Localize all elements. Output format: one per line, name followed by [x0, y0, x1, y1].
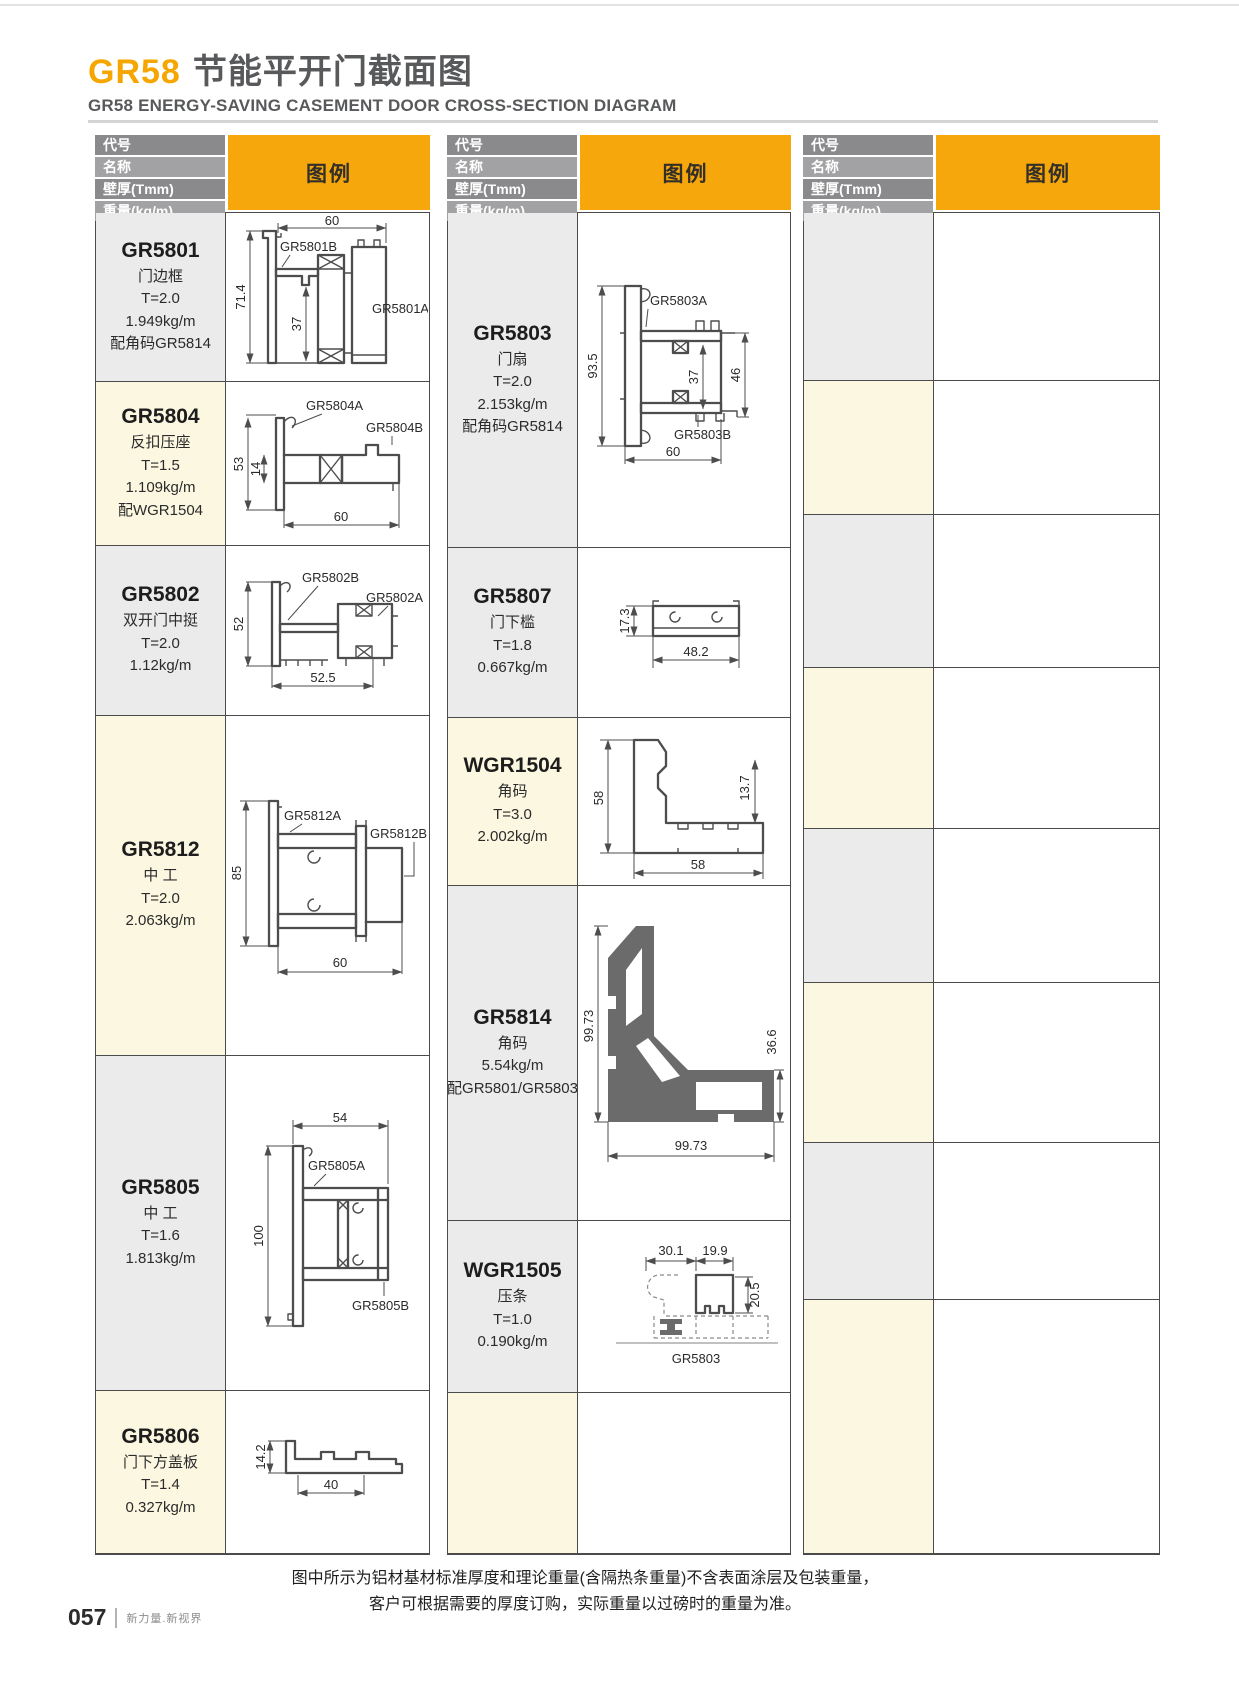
dim-right: 20.5	[747, 1282, 762, 1307]
context-profile-label: GR5803	[672, 1351, 720, 1366]
row-gr5801: GR5801 门边框 T=2.0 1.949kg/m 配角码GR5814	[96, 213, 429, 382]
product-thickness: T=2.0	[493, 371, 532, 394]
dim-height: 99.73	[581, 1010, 596, 1043]
product-thickness: T=1.8	[493, 635, 532, 658]
product-name: 中 工	[143, 865, 177, 888]
product-info-cell: GR5806 门下方盖板 T=1.4 0.327kg/m	[96, 1391, 226, 1553]
row-empty	[804, 1300, 1159, 1553]
product-info-cell: GR5814 角码 5.54kg/m 配GR5801/GR5803	[448, 886, 578, 1220]
row-gr5803: GR5803 门扇 T=2.0 2.153kg/m 配角码GR5814	[448, 213, 790, 548]
gr5802-cross-section-svg: 52 52.5 GR5802B GR5802A	[226, 546, 428, 715]
empty-diagram-cell	[934, 983, 1159, 1142]
dim-right: 46	[728, 368, 743, 382]
empty-info-cell	[804, 829, 934, 982]
product-thickness: T=1.6	[141, 1225, 180, 1248]
legend-header: 图例	[228, 135, 430, 210]
part-label-a: GR5801A	[372, 301, 428, 316]
row-empty	[804, 668, 1159, 829]
dim-height: 17.3	[617, 608, 632, 633]
empty-info-cell	[804, 668, 934, 828]
page-number: 057	[68, 1604, 106, 1631]
empty-info-cell	[804, 1300, 934, 1553]
dim-top1: 30.1	[658, 1243, 683, 1258]
product-info-cell: GR5804 反扣压座 T=1.5 1.109kg/m 配WGR1504	[96, 382, 226, 545]
product-weight: 0.190kg/m	[477, 1331, 547, 1354]
product-info-cell: WGR1505 压条 T=1.0 0.190kg/m	[448, 1221, 578, 1392]
dim-top: 60	[325, 213, 339, 228]
header-row-code: 代号	[95, 135, 225, 155]
header-row-thickness: 壁厚(Tmm)	[95, 179, 225, 199]
product-name: 门边框	[138, 266, 183, 289]
profile-outline	[653, 606, 739, 636]
product-note: 配角码GR5814	[462, 416, 563, 439]
product-code: GR5803	[473, 322, 551, 346]
profile-outline	[276, 418, 284, 510]
header-row-code: 代号	[803, 135, 933, 155]
footer-note-line1: 图中所示为铝材基材标准厚度和理论重量(含隔热条重量)不含表面涂层及包装重量，	[95, 1566, 1075, 1592]
profile-outline	[269, 801, 278, 946]
gr5803-cross-section-svg: 93.5 37 46 60 GR5803A GR5803B	[578, 213, 789, 547]
profile-outline	[625, 286, 641, 446]
dim-bottom: 60	[334, 509, 348, 524]
dim-bottom: 58	[691, 857, 705, 872]
dim-right: 13.7	[737, 775, 752, 800]
dim-bottom: 40	[324, 1477, 338, 1492]
diagram-cell: 54 100 GR5805A GR5805B	[226, 1056, 429, 1390]
product-name: 压条	[497, 1286, 527, 1309]
part-label-a: GR5812A	[284, 808, 341, 823]
part-label-b: GR5801B	[280, 239, 337, 254]
profile-outline	[263, 231, 276, 363]
gr5806-cross-section-svg: 14.2 40	[226, 1391, 428, 1552]
header-row-thickness: 壁厚(Tmm)	[803, 179, 933, 199]
header-row-name: 名称	[803, 157, 933, 177]
product-thickness: T=2.0	[141, 633, 180, 656]
product-code: GR5814	[473, 1006, 551, 1030]
product-weight: 2.153kg/m	[477, 394, 547, 417]
product-name: 双开门中挺	[123, 610, 198, 633]
dim-height: 93.5	[585, 353, 600, 378]
header-label-stack: 代号 名称 壁厚(Tmm) 重量(kg/m)	[803, 135, 933, 210]
product-note: 配GR5801/GR5803	[447, 1078, 578, 1101]
gr5801-cross-section-svg: 60 71.4 37 GR5801B GR5801A	[226, 213, 428, 381]
row-empty	[804, 1143, 1159, 1300]
row-gr5806: GR5806 门下方盖板 T=1.4 0.327kg/m 14.2 40	[96, 1391, 429, 1553]
empty-info-cell	[804, 983, 934, 1142]
diagram-cell: 99.73 36.6 99.73	[578, 886, 790, 1220]
product-note: 配WGR1504	[118, 500, 203, 523]
dim-bottom: 48.2	[683, 644, 708, 659]
row-empty	[804, 381, 1159, 515]
row-empty	[804, 983, 1159, 1143]
gr5807-cross-section-svg: 17.3 48.2	[578, 548, 789, 717]
product-info-cell: GR5812 中 工 T=2.0 2.063kg/m	[96, 716, 226, 1055]
footer-divider	[115, 1608, 117, 1628]
product-weight: 1.949kg/m	[125, 311, 195, 334]
part-label-a: GR5802A	[366, 590, 423, 605]
row-gr5804: GR5804 反扣压座 T=1.5 1.109kg/m 配WGR1504	[96, 382, 429, 546]
product-code: GR5801	[121, 239, 199, 263]
part-label-a: GR5804A	[306, 398, 363, 413]
wgr1505-cross-section-svg: 30.1 19.9 20.5 GR5803	[578, 1221, 789, 1392]
table-header: 代号 名称 壁厚(Tmm) 重量(kg/m) 图例	[803, 135, 1160, 210]
profile-outline	[293, 1146, 303, 1326]
product-name: 中 工	[143, 1203, 177, 1226]
dim-height: 71.4	[233, 284, 248, 309]
table-body: GR5801 门边框 T=2.0 1.949kg/m 配角码GR5814	[95, 212, 430, 1555]
header-row-name: 名称	[95, 157, 225, 177]
product-weight: 2.063kg/m	[125, 910, 195, 933]
product-info-cell: GR5805 中 工 T=1.6 1.813kg/m	[96, 1056, 226, 1390]
profile-outline	[696, 1275, 733, 1313]
row-gr5814: GR5814 角码 5.54kg/m 配GR5801/GR5803 99.73 …	[448, 886, 790, 1221]
page-title-en: GR58 ENERGY-SAVING CASEMENT DOOR CROSS-S…	[88, 96, 677, 116]
dim-bottom: 60	[333, 955, 347, 970]
dim-top: 54	[333, 1110, 347, 1125]
gr5812-cross-section-svg: 85 60 GR5812A GR5812B	[226, 716, 428, 1055]
product-code: WGR1505	[463, 1259, 561, 1283]
table-body	[803, 212, 1160, 1555]
part-label-a: GR5803A	[650, 293, 707, 308]
product-thickness: T=2.0	[141, 288, 180, 311]
product-code: GR5807	[473, 585, 551, 609]
catalog-page: GR58节能平开门截面图 GR58 ENERGY-SAVING CASEMENT…	[0, 0, 1239, 1681]
page-title-zh: 节能平开门截面图	[193, 53, 473, 91]
diagram-cell: 17.3 48.2	[578, 548, 790, 717]
page-title: GR58节能平开门截面图	[88, 44, 677, 93]
product-name: 角码	[497, 781, 527, 804]
part-label-b: GR5802B	[302, 570, 359, 585]
header-label-stack: 代号 名称 壁厚(Tmm) 重量(kg/m)	[447, 135, 577, 210]
empty-info-cell	[448, 1393, 578, 1553]
row-empty	[804, 213, 1159, 381]
table-body: GR5803 门扇 T=2.0 2.153kg/m 配角码GR5814	[447, 212, 791, 1555]
empty-diagram-cell	[934, 829, 1159, 982]
profile-outline	[272, 582, 280, 666]
diagram-cell: 85 60 GR5812A GR5812B	[226, 716, 429, 1055]
product-info-cell: WGR1504 角码 T=3.0 2.002kg/m	[448, 718, 578, 885]
empty-diagram-cell	[934, 515, 1159, 667]
row-gr5805: GR5805 中 工 T=1.6 1.813kg/m 54	[96, 1056, 429, 1391]
dim-inner: 14	[248, 462, 263, 476]
product-name: 门扇	[497, 349, 527, 372]
row-empty	[448, 1393, 790, 1553]
dim-bottom: 52.5	[310, 670, 335, 685]
row-gr5802: GR5802 双开门中挺 T=2.0 1.12kg/m	[96, 546, 429, 716]
table-header: 代号 名称 壁厚(Tmm) 重量(kg/m) 图例	[95, 135, 430, 210]
dim-height: 100	[251, 1225, 266, 1247]
footer-note-line2: 客户可根据需要的厚度订购，实际重量以过磅时的重量为准。	[95, 1592, 1075, 1618]
empty-info-cell	[804, 1143, 934, 1299]
row-empty	[804, 515, 1159, 668]
dim-height: 58	[591, 791, 606, 805]
empty-info-cell	[804, 515, 934, 667]
dim-height: 85	[229, 866, 244, 880]
product-weight: 5.54kg/m	[482, 1055, 544, 1078]
dim-bottom: 99.73	[675, 1138, 708, 1153]
empty-diagram-cell	[934, 213, 1159, 380]
empty-info-cell	[804, 381, 934, 514]
product-weight: 2.002kg/m	[477, 826, 547, 849]
table-column-3: 代号 名称 壁厚(Tmm) 重量(kg/m) 图例	[803, 135, 1160, 1555]
product-note: 配角码GR5814	[110, 333, 211, 356]
row-wgr1504: WGR1504 角码 T=3.0 2.002kg/m 58 13.7	[448, 718, 790, 886]
empty-diagram-cell	[934, 1300, 1159, 1553]
dim-height: 14.2	[253, 1444, 268, 1469]
gr5805-cross-section-svg: 54 100 GR5805A GR5805B	[226, 1056, 428, 1390]
product-weight: 1.813kg/m	[125, 1248, 195, 1271]
product-thickness: T=3.0	[493, 804, 532, 827]
header-row-name: 名称	[447, 157, 577, 177]
legend-header: 图例	[580, 135, 791, 210]
product-name: 角码	[497, 1033, 527, 1056]
title-block: GR58节能平开门截面图 GR58 ENERGY-SAVING CASEMENT…	[88, 44, 677, 116]
gr5804-cross-section-svg: 53 14 60 GR5804A GR5804B	[226, 382, 428, 545]
product-code: GR5812	[121, 838, 199, 862]
diagram-cell: 30.1 19.9 20.5 GR5803	[578, 1221, 790, 1392]
diagram-cell: 58 13.7 58	[578, 718, 790, 885]
row-empty	[804, 829, 1159, 983]
product-info-cell: GR5801 门边框 T=2.0 1.949kg/m 配角码GR5814	[96, 213, 226, 381]
product-weight: 1.109kg/m	[125, 477, 195, 500]
product-code: WGR1504	[463, 754, 561, 778]
diagram-cell: 14.2 40	[226, 1391, 429, 1553]
header-row-thickness: 壁厚(Tmm)	[447, 179, 577, 199]
product-info-cell: GR5803 门扇 T=2.0 2.153kg/m 配角码GR5814	[448, 213, 578, 547]
table-column-1: 代号 名称 壁厚(Tmm) 重量(kg/m) 图例 GR5801 门边框 T=2…	[95, 135, 430, 1555]
product-code: GR5802	[121, 583, 199, 607]
product-info-cell: GR5802 双开门中挺 T=2.0 1.12kg/m	[96, 546, 226, 715]
empty-info-cell	[804, 213, 934, 380]
profile-solid	[608, 926, 774, 1122]
product-code: GR5805	[121, 1176, 199, 1200]
dim-height: 52	[231, 617, 246, 631]
dim-top2: 19.9	[702, 1243, 727, 1258]
header-label-stack: 代号 名称 壁厚(Tmm) 重量(kg/m)	[95, 135, 225, 210]
dim-height: 53	[231, 457, 246, 471]
page-top-rule	[0, 4, 1239, 6]
gr5814-cross-section-svg: 99.73 36.6 99.73	[578, 886, 789, 1220]
part-label-b: GR5804B	[366, 420, 423, 435]
dim-inner: 37	[289, 317, 304, 331]
diagram-cell: 53 14 60 GR5804A GR5804B	[226, 382, 429, 545]
part-label-b: GR5805B	[352, 1298, 409, 1313]
product-name: 反扣压座	[130, 432, 190, 455]
dim-right: 36.6	[764, 1029, 779, 1054]
product-name: 门下槛	[490, 612, 535, 635]
product-thickness: T=1.4	[141, 1474, 180, 1497]
header-row-code: 代号	[447, 135, 577, 155]
empty-diagram-cell	[578, 1393, 790, 1553]
product-weight: 0.667kg/m	[477, 657, 547, 680]
product-thickness: T=1.0	[493, 1309, 532, 1332]
footer-note: 图中所示为铝材基材标准厚度和理论重量(含隔热条重量)不含表面涂层及包装重量， 客…	[95, 1566, 1075, 1618]
product-thickness: T=2.0	[141, 888, 180, 911]
product-code: GR5804	[121, 405, 199, 429]
row-wgr1505: WGR1505 压条 T=1.0 0.190kg/m 30.1 19.9	[448, 1221, 790, 1393]
row-gr5807: GR5807 门下槛 T=1.8 0.667kg/m 17.3	[448, 548, 790, 718]
product-name: 门下方盖板	[123, 1452, 198, 1475]
diagram-cell: 60 71.4 37 GR5801B GR5801A	[226, 213, 429, 381]
part-label-b: GR5803B	[674, 427, 731, 442]
table-column-2: 代号 名称 壁厚(Tmm) 重量(kg/m) 图例 GR5803 门扇 T=2.…	[447, 135, 791, 1555]
product-weight: 0.327kg/m	[125, 1497, 195, 1520]
empty-diagram-cell	[934, 668, 1159, 828]
empty-diagram-cell	[934, 1143, 1159, 1299]
wgr1504-cross-section-svg: 58 13.7 58	[578, 718, 789, 885]
product-code: GR5806	[121, 1425, 199, 1449]
diagram-cell: 52 52.5 GR5802B GR5802A	[226, 546, 429, 715]
dim-bottom: 60	[666, 444, 680, 459]
legend-header: 图例	[936, 135, 1160, 210]
part-label-b: GR5812B	[370, 826, 427, 841]
footer-slogan: 新力量.新视界	[126, 1610, 202, 1626]
row-gr5812: GR5812 中 工 T=2.0 2.063kg/m	[96, 716, 429, 1056]
part-label-a: GR5805A	[308, 1158, 365, 1173]
title-underline	[88, 120, 1158, 123]
empty-diagram-cell	[934, 381, 1159, 514]
product-thickness: T=1.5	[141, 455, 180, 478]
diagram-cell: 93.5 37 46 60 GR5803A GR5803B	[578, 213, 790, 547]
table-header: 代号 名称 壁厚(Tmm) 重量(kg/m) 图例	[447, 135, 791, 210]
page-footer: 057 新力量.新视界	[68, 1604, 202, 1631]
profile-outline	[286, 1441, 402, 1473]
product-info-cell: GR5807 门下槛 T=1.8 0.667kg/m	[448, 548, 578, 717]
dim-inner: 37	[686, 370, 701, 384]
product-weight: 1.12kg/m	[130, 655, 192, 678]
page-title-code: GR58	[88, 53, 181, 91]
